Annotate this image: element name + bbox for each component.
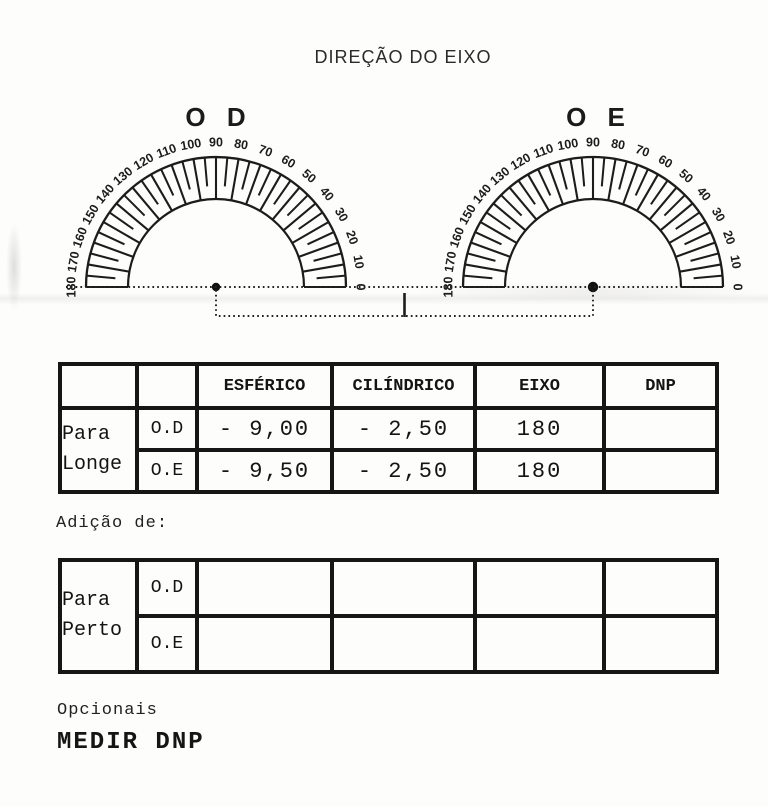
near-prescription-table: Para Perto O.D O.E xyxy=(58,558,719,674)
protractor-degree-label: 150 xyxy=(79,202,102,227)
header-empty xyxy=(60,364,137,408)
protractor-degree-label: 90 xyxy=(209,135,223,149)
protractor-degree-label: 100 xyxy=(556,136,579,153)
group-label-line1: Para xyxy=(62,586,135,616)
protractor-degree-label: 70 xyxy=(257,142,275,160)
opcionais-label: Opcionais xyxy=(57,701,158,720)
axis-direction-protractor-diagram: 1801701601501401301201101009080706050403… xyxy=(0,0,768,340)
protractor-degree-label: 20 xyxy=(343,229,361,247)
eixo-od-empty xyxy=(475,560,604,616)
eixo-oe-value: 180 xyxy=(475,450,604,492)
dnp-od-empty xyxy=(604,560,717,616)
protractor-degree-label: 0 xyxy=(731,284,745,291)
protractor-degree-label: 110 xyxy=(155,141,179,161)
protractor-degree-label: 140 xyxy=(470,181,494,206)
protractor-degree-label: 120 xyxy=(131,150,156,173)
dnp-oe-empty xyxy=(604,616,717,672)
protractor-od: 1801701601501401301201101009080706050403… xyxy=(64,135,367,297)
protractor-degree-label: 110 xyxy=(532,141,556,161)
protractor-degree-label: 140 xyxy=(93,181,117,206)
header-cilindrico: CILÍNDRICO xyxy=(332,364,475,408)
protractor-degree-label: 50 xyxy=(299,166,319,186)
protractor-degree-label: 40 xyxy=(317,184,337,204)
protractor-degree-label: 170 xyxy=(442,250,459,273)
protractor-degree-label: 160 xyxy=(70,225,90,249)
table-header-row: ESFÉRICO CILÍNDRICO EIXO DNP xyxy=(60,364,717,408)
eixo-od-value: 180 xyxy=(475,408,604,450)
cilindrico-od-value: - 2,50 xyxy=(332,408,475,450)
dnp-oe-value xyxy=(604,450,717,492)
group-label-line2: Perto xyxy=(62,616,135,646)
adicao-label: Adição de: xyxy=(56,514,168,533)
protractor-degree-label: 100 xyxy=(179,136,202,153)
protractor-degree-label: 80 xyxy=(233,136,249,152)
esferico-od-empty xyxy=(197,560,332,616)
protractor-degree-label: 10 xyxy=(727,254,743,270)
group-label-line2: Longe xyxy=(62,450,135,480)
protractor-degree-label: 120 xyxy=(508,150,533,173)
protractor-degree-label: 10 xyxy=(350,254,366,270)
eye-od-cell: O.D xyxy=(137,408,197,450)
protractor-degree-label: 90 xyxy=(586,135,600,149)
protractor-degree-label: 150 xyxy=(456,202,479,227)
table-row: Para Longe O.D - 9,00 - 2,50 180 xyxy=(60,408,717,450)
protractor-oe: 1801701601501401301201101009080706050403… xyxy=(441,135,744,297)
table-row: Para Perto O.D xyxy=(60,560,717,616)
esferico-oe-value: - 9,50 xyxy=(197,450,332,492)
group-label-para-longe: Para Longe xyxy=(60,408,137,492)
protractor-degree-label: 160 xyxy=(447,225,467,249)
table-row: O.E - 9,50 - 2,50 180 xyxy=(60,450,717,492)
group-label-line1: Para xyxy=(62,420,135,450)
header-dnp: DNP xyxy=(604,364,717,408)
protractor-degree-label: 60 xyxy=(656,152,675,171)
esferico-oe-empty xyxy=(197,616,332,672)
header-eixo: EIXO xyxy=(475,364,604,408)
protractor-degree-label: 40 xyxy=(694,184,714,204)
table-row: O.E xyxy=(60,616,717,672)
protractor-degree-label: 80 xyxy=(610,136,626,152)
protractor-degree-label: 20 xyxy=(720,229,738,247)
eye-od-cell: O.D xyxy=(137,560,197,616)
cilindrico-od-empty xyxy=(332,560,475,616)
protractor-degree-label: 30 xyxy=(709,205,728,224)
esferico-od-value: - 9,00 xyxy=(197,408,332,450)
eye-oe-cell: O.E xyxy=(137,616,197,672)
cilindrico-oe-value: - 2,50 xyxy=(332,450,475,492)
protractor-degree-label: 170 xyxy=(65,250,82,273)
header-empty xyxy=(137,364,197,408)
eixo-oe-empty xyxy=(475,616,604,672)
protractor-degree-label: 130 xyxy=(110,164,135,188)
eye-oe-cell: O.E xyxy=(137,450,197,492)
header-esferico: ESFÉRICO xyxy=(197,364,332,408)
group-label-para-perto: Para Perto xyxy=(60,560,137,672)
cilindrico-oe-empty xyxy=(332,616,475,672)
protractor-degree-label: 130 xyxy=(487,164,512,188)
protractor-degree-label: 30 xyxy=(332,205,351,224)
distance-prescription-table: ESFÉRICO CILÍNDRICO EIXO DNP Para Longe … xyxy=(58,362,719,494)
scanned-prescription-form: DIREÇÃO DO EIXO O D O E 1801701601501401… xyxy=(0,0,768,807)
protractor-degree-label: 180 xyxy=(441,277,455,298)
medir-dnp-label: MEDIR DNP xyxy=(57,729,205,756)
dnp-od-value xyxy=(604,408,717,450)
protractor-degree-label: 60 xyxy=(279,152,298,171)
protractor-degree-label: 0 xyxy=(354,284,368,291)
protractor-degree-label: 70 xyxy=(634,142,652,160)
protractor-degree-label: 50 xyxy=(676,166,696,186)
